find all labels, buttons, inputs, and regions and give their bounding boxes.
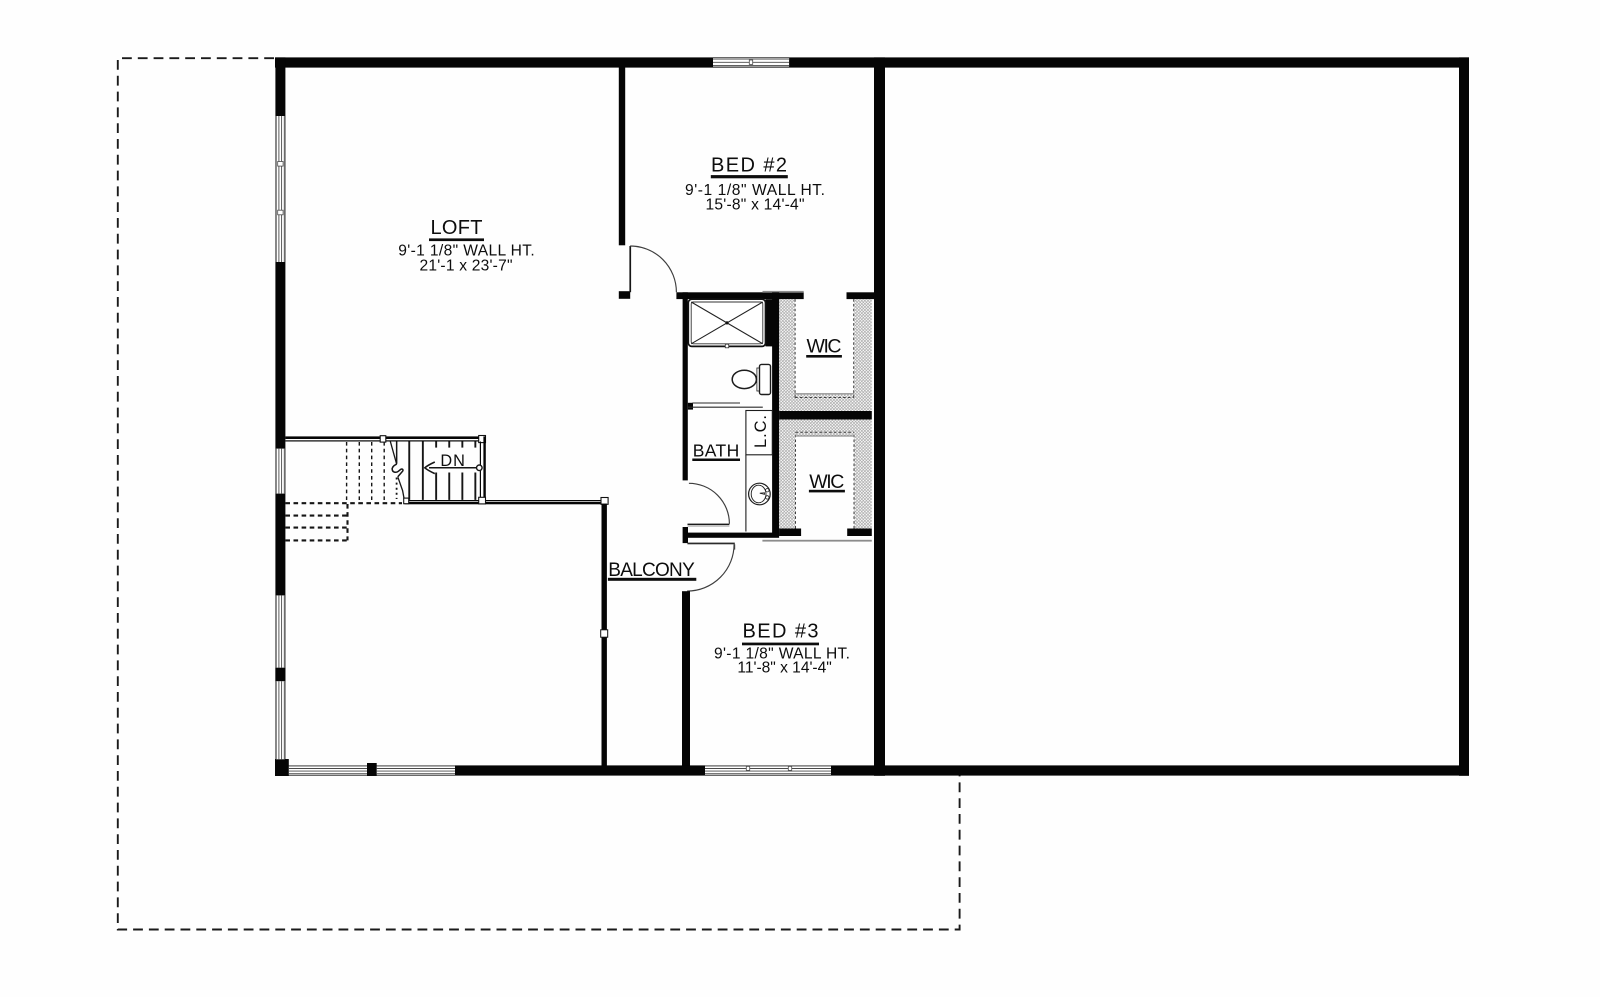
svg-text:21'-1 x 23'-7": 21'-1 x 23'-7" [420, 258, 513, 275]
svg-text:11'-8" x 14'-4": 11'-8" x 14'-4" [737, 659, 831, 676]
svg-text:BATH: BATH [693, 440, 740, 460]
svg-text:WIC: WIC [809, 471, 844, 493]
svg-text:15'-8" x 14'-4": 15'-8" x 14'-4" [706, 196, 805, 213]
svg-text:BED #2: BED #2 [711, 155, 787, 177]
svg-text:L.C.: L.C. [752, 415, 770, 448]
svg-text:LOFT: LOFT [431, 217, 483, 239]
svg-text:BED #3: BED #3 [743, 621, 819, 643]
svg-text:WIC: WIC [807, 336, 842, 358]
